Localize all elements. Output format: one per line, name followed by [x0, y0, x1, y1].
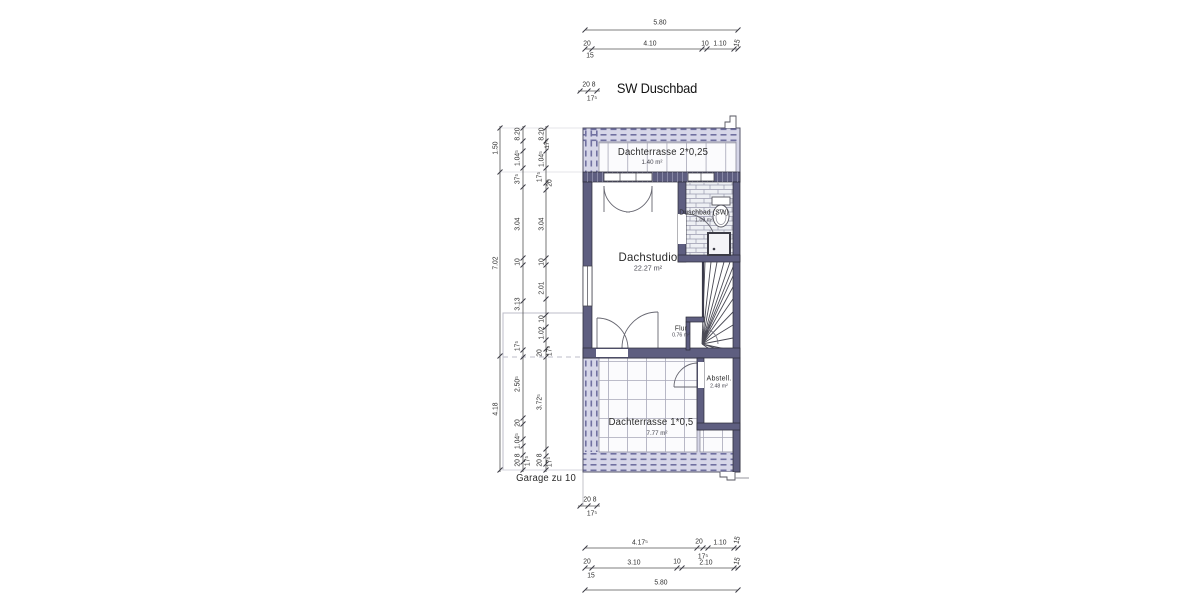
abstell-floor	[702, 358, 733, 424]
floor-plan-drawing	[0, 0, 1200, 600]
garage-reference-outline	[500, 128, 583, 506]
floor-plan-canvas: SW Duschbad Dachterrasse 2*0,251.40 m²Da…	[0, 0, 1200, 600]
top-right-notch	[725, 116, 736, 128]
shower-icon	[708, 233, 730, 255]
terrace2-door-window	[604, 173, 652, 181]
duschbad-door-opening	[678, 214, 686, 244]
terrace1-door-opening	[596, 349, 628, 357]
dachstudio-side-window	[583, 266, 592, 306]
bottom-right-notch	[720, 472, 735, 480]
abstell-door-opening	[698, 362, 704, 388]
toilet-icon	[712, 197, 730, 227]
duschbad-window	[688, 173, 714, 181]
